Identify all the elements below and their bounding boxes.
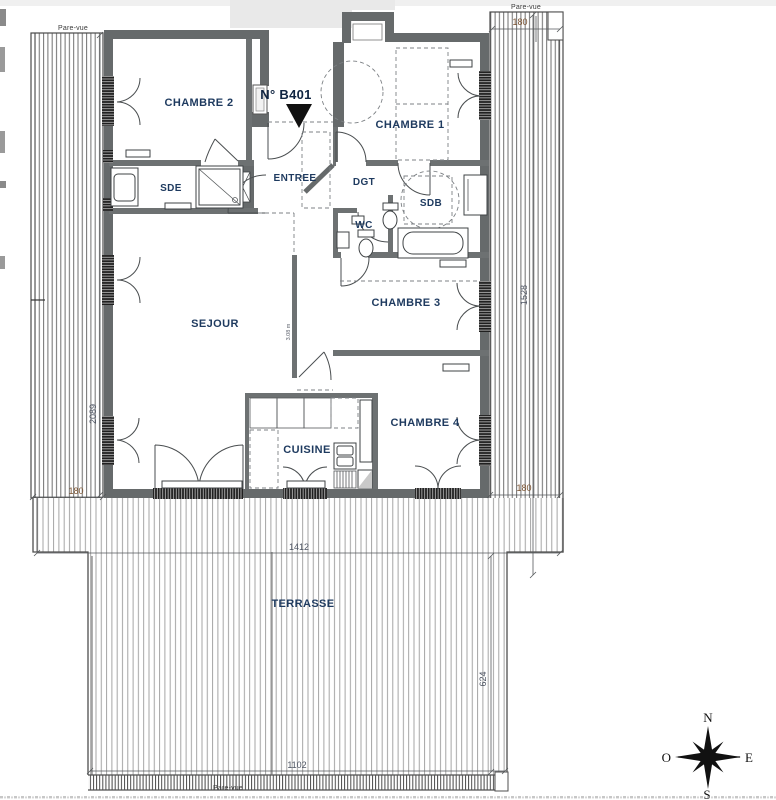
compass-rose: N E S O: [662, 710, 753, 800]
room-label-chambre2: CHAMBRE 2: [165, 97, 234, 109]
compass-east-label: E: [745, 750, 753, 765]
room-label-sdb: SDB: [420, 198, 442, 209]
pare-vue-label-top-right: Pare-vue: [511, 4, 541, 11]
room-label-dgt: DGT: [353, 177, 375, 188]
dim-screen-top-right: 180: [512, 17, 527, 27]
cropped-caption-strip: [0, 795, 776, 800]
room-label-chambre4: CHAMBRE 4: [391, 417, 460, 429]
compass-cardinal-star: [675, 726, 741, 789]
pare-vue-label-bottom: Pare-vue: [213, 785, 243, 792]
entrance-marker: [286, 104, 312, 128]
compass-north-label: N: [703, 710, 713, 725]
room-label-entree: ENTREE: [274, 173, 317, 184]
dim-corridor: 3.08 m: [286, 323, 292, 340]
compass-west-label: O: [662, 750, 671, 765]
dim-terrace-depth: 624: [478, 671, 488, 686]
dim-bottom-left: 180: [68, 486, 83, 496]
floor-plan-page: N° B401 CHAMBRE 2 CHAMBRE 1 SDE ENTREE D…: [0, 0, 776, 800]
dim-left-side: 2089: [88, 404, 98, 424]
room-label-sde: SDE: [160, 183, 182, 194]
room-label-chambre1: CHAMBRE 1: [376, 119, 445, 131]
floor-plan-drawing: N° B401 CHAMBRE 2 CHAMBRE 1 SDE ENTREE D…: [0, 0, 776, 800]
room-label-chambre3: CHAMBRE 3: [372, 297, 441, 309]
room-label-cuisine: CUISINE: [283, 444, 330, 456]
unit-number-label: N° B401: [260, 87, 311, 102]
room-label-wc: WC: [355, 220, 372, 231]
room-label-sejour: SEJOUR: [191, 318, 239, 330]
pare-vue-left-screen: [31, 33, 103, 498]
dim-right-side: 1528: [519, 285, 529, 305]
room-label-terrasse: TERRASSE: [271, 598, 334, 610]
dim-bottom-right: 180: [516, 483, 531, 493]
dim-terrace-bottom: 1102: [287, 760, 306, 770]
pare-vue-right-screen: [490, 12, 563, 552]
dim-terrace-width: 1412: [289, 542, 309, 552]
pare-vue-label-top-left: Pare-vue: [58, 25, 88, 32]
